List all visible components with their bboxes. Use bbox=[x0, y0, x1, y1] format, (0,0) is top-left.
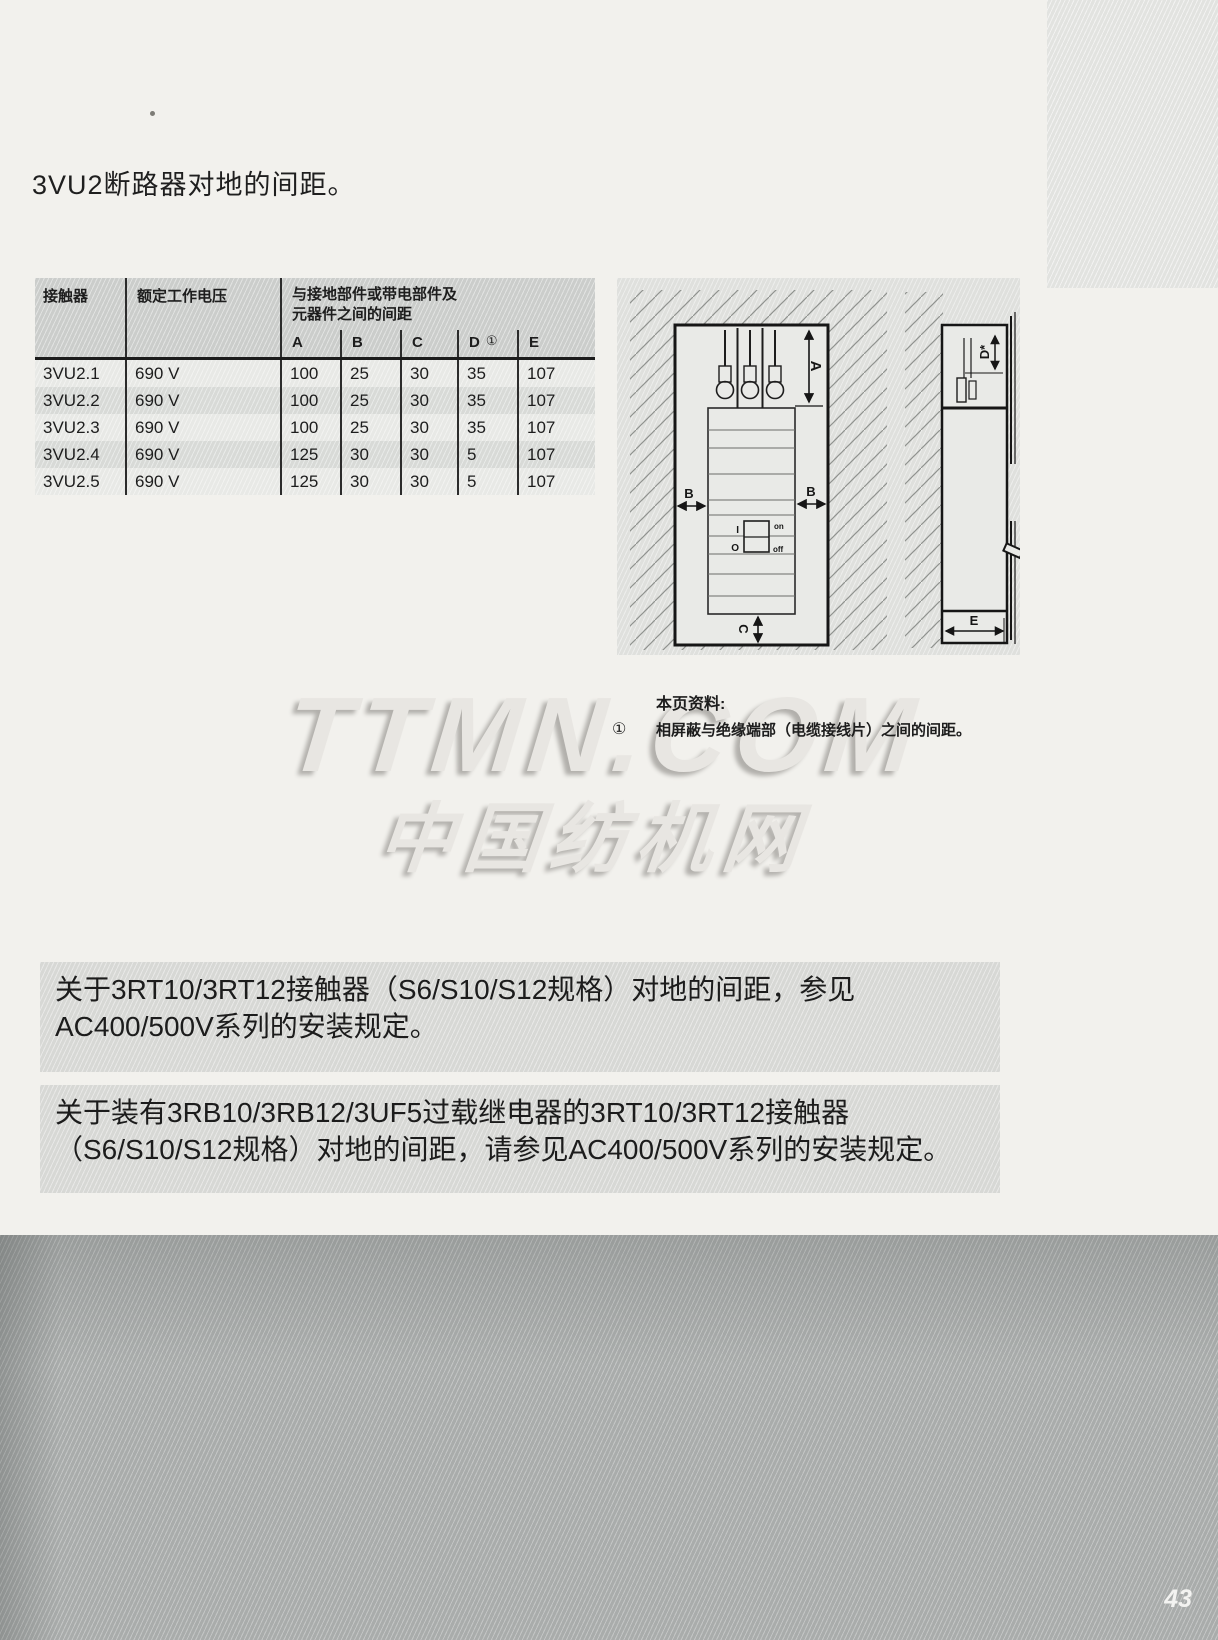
col-header-d: D① bbox=[457, 330, 517, 357]
footnote-marker: ① bbox=[612, 719, 656, 740]
col-header-contactor: 接触器 bbox=[35, 278, 125, 357]
scan-speck bbox=[150, 111, 155, 116]
watermark-line2: 中国纺机网 bbox=[190, 802, 998, 878]
cell-model: 3VU2.4 bbox=[35, 441, 125, 468]
cell-voltage: 690 V bbox=[125, 468, 280, 495]
cell-a: 100 bbox=[280, 387, 340, 414]
cell-b: 25 bbox=[340, 360, 400, 387]
cell-a: 100 bbox=[280, 414, 340, 441]
catalog-page: 3VU2断路器对地的间距。 接触器 额定工作电压 与接地部件或带电部件及 元器件… bbox=[0, 0, 1218, 1640]
switch-o-label: O bbox=[731, 543, 739, 554]
cell-b: 30 bbox=[340, 441, 400, 468]
front-view-drawing: A B B C I on O off bbox=[630, 290, 887, 650]
col-header-d-letter: D bbox=[469, 334, 480, 351]
table-row: 3VU2.4 690 V 125 30 30 5 107 bbox=[35, 441, 595, 468]
cell-model: 3VU2.1 bbox=[35, 360, 125, 387]
cell-e: 107 bbox=[517, 414, 595, 441]
switch-off-label: off bbox=[773, 545, 784, 554]
cell-d: 35 bbox=[457, 387, 517, 414]
col-header-clearance-group: 与接地部件或带电部件及 元器件之间的间距 bbox=[280, 278, 595, 330]
cell-a: 100 bbox=[280, 360, 340, 387]
cell-d: 35 bbox=[457, 414, 517, 441]
cell-d: 5 bbox=[457, 468, 517, 495]
table-row: 3VU2.5 690 V 125 30 30 5 107 bbox=[35, 468, 595, 495]
dim-b-left-label: B bbox=[684, 486, 693, 501]
col-header-b: B bbox=[340, 330, 400, 357]
cell-a: 125 bbox=[280, 441, 340, 468]
table-row: 3VU2.2 690 V 100 25 30 35 107 bbox=[35, 387, 595, 414]
footnote-block: 本页资料: ① 相屏蔽与绝缘端部（电缆接线片）之间的间距。 bbox=[612, 690, 1032, 740]
cell-model: 3VU2.2 bbox=[35, 387, 125, 414]
dim-e-label: E bbox=[970, 613, 979, 628]
mounting-plate bbox=[1011, 312, 1015, 644]
table-header: 接触器 额定工作电压 与接地部件或带电部件及 元器件之间的间距 A B C D①… bbox=[35, 278, 595, 360]
cell-c: 30 bbox=[400, 360, 457, 387]
switch-on-label: on bbox=[774, 522, 784, 531]
cell-voltage: 690 V bbox=[125, 441, 280, 468]
cell-d: 35 bbox=[457, 360, 517, 387]
breaker-body bbox=[708, 408, 795, 614]
cell-e: 107 bbox=[517, 360, 595, 387]
footnote-text: 相屏蔽与绝缘端部（电缆接线片）之间的间距。 bbox=[656, 719, 971, 740]
clearance-group-line1: 与接地部件或带电部件及 bbox=[292, 285, 595, 305]
cell-voltage: 690 V bbox=[125, 387, 280, 414]
footnote-ref-mark: ① bbox=[486, 333, 498, 348]
cell-b: 25 bbox=[340, 387, 400, 414]
diagram-svg: A B B C I on O off bbox=[617, 278, 1020, 655]
footnote-line: ① 相屏蔽与绝缘端部（电缆接线片）之间的间距。 bbox=[612, 719, 1032, 740]
footer-band: 43 bbox=[0, 1235, 1218, 1640]
ground-hatch-band bbox=[905, 292, 943, 648]
switch-i-label: I bbox=[736, 525, 739, 536]
table-row: 3VU2.3 690 V 100 25 30 35 107 bbox=[35, 414, 595, 441]
cell-model: 3VU2.5 bbox=[35, 468, 125, 495]
col-header-voltage: 额定工作电压 bbox=[125, 278, 280, 357]
cell-b: 30 bbox=[340, 468, 400, 495]
cell-d: 5 bbox=[457, 441, 517, 468]
dim-c-label: C bbox=[736, 624, 751, 634]
footnote-heading: 本页资料: bbox=[656, 690, 1032, 714]
cell-voltage: 690 V bbox=[125, 414, 280, 441]
cell-model: 3VU2.3 bbox=[35, 414, 125, 441]
cell-e: 107 bbox=[517, 441, 595, 468]
page-title: 3VU2断路器对地的间距。 bbox=[32, 163, 356, 202]
clearance-table: 接触器 额定工作电压 与接地部件或带电部件及 元器件之间的间距 A B C D①… bbox=[35, 278, 595, 495]
page-number: 43 bbox=[1164, 1585, 1192, 1614]
side-view-drawing: D* E bbox=[905, 292, 1020, 648]
cell-b: 25 bbox=[340, 414, 400, 441]
cell-e: 107 bbox=[517, 387, 595, 414]
col-header-e: E bbox=[517, 330, 595, 357]
clearance-diagram: A B B C I on O off bbox=[617, 278, 1020, 655]
reference-paragraph-1: 关于3RT10/3RT12接触器（S6/S10/S12规格）对地的间距，参见AC… bbox=[40, 962, 1000, 1072]
cell-voltage: 690 V bbox=[125, 360, 280, 387]
cell-c: 30 bbox=[400, 441, 457, 468]
reference-paragraph-2: 关于装有3RB10/3RB12/3UF5过载继电器的3RT10/3RT12接触器… bbox=[40, 1085, 1000, 1193]
cell-a: 125 bbox=[280, 468, 340, 495]
dim-b-right-label: B bbox=[806, 484, 815, 499]
scan-edge-band bbox=[1047, 0, 1218, 288]
cell-c: 30 bbox=[400, 468, 457, 495]
cell-e: 107 bbox=[517, 468, 595, 495]
dim-a-label: A bbox=[807, 361, 824, 372]
clearance-group-line2: 元器件之间的间距 bbox=[292, 305, 595, 325]
cell-c: 30 bbox=[400, 414, 457, 441]
col-header-a: A bbox=[280, 330, 340, 357]
col-header-c: C bbox=[400, 330, 457, 357]
dim-d-label: D* bbox=[977, 344, 992, 359]
cell-c: 30 bbox=[400, 387, 457, 414]
table-row: 3VU2.1 690 V 100 25 30 35 107 bbox=[35, 360, 595, 387]
